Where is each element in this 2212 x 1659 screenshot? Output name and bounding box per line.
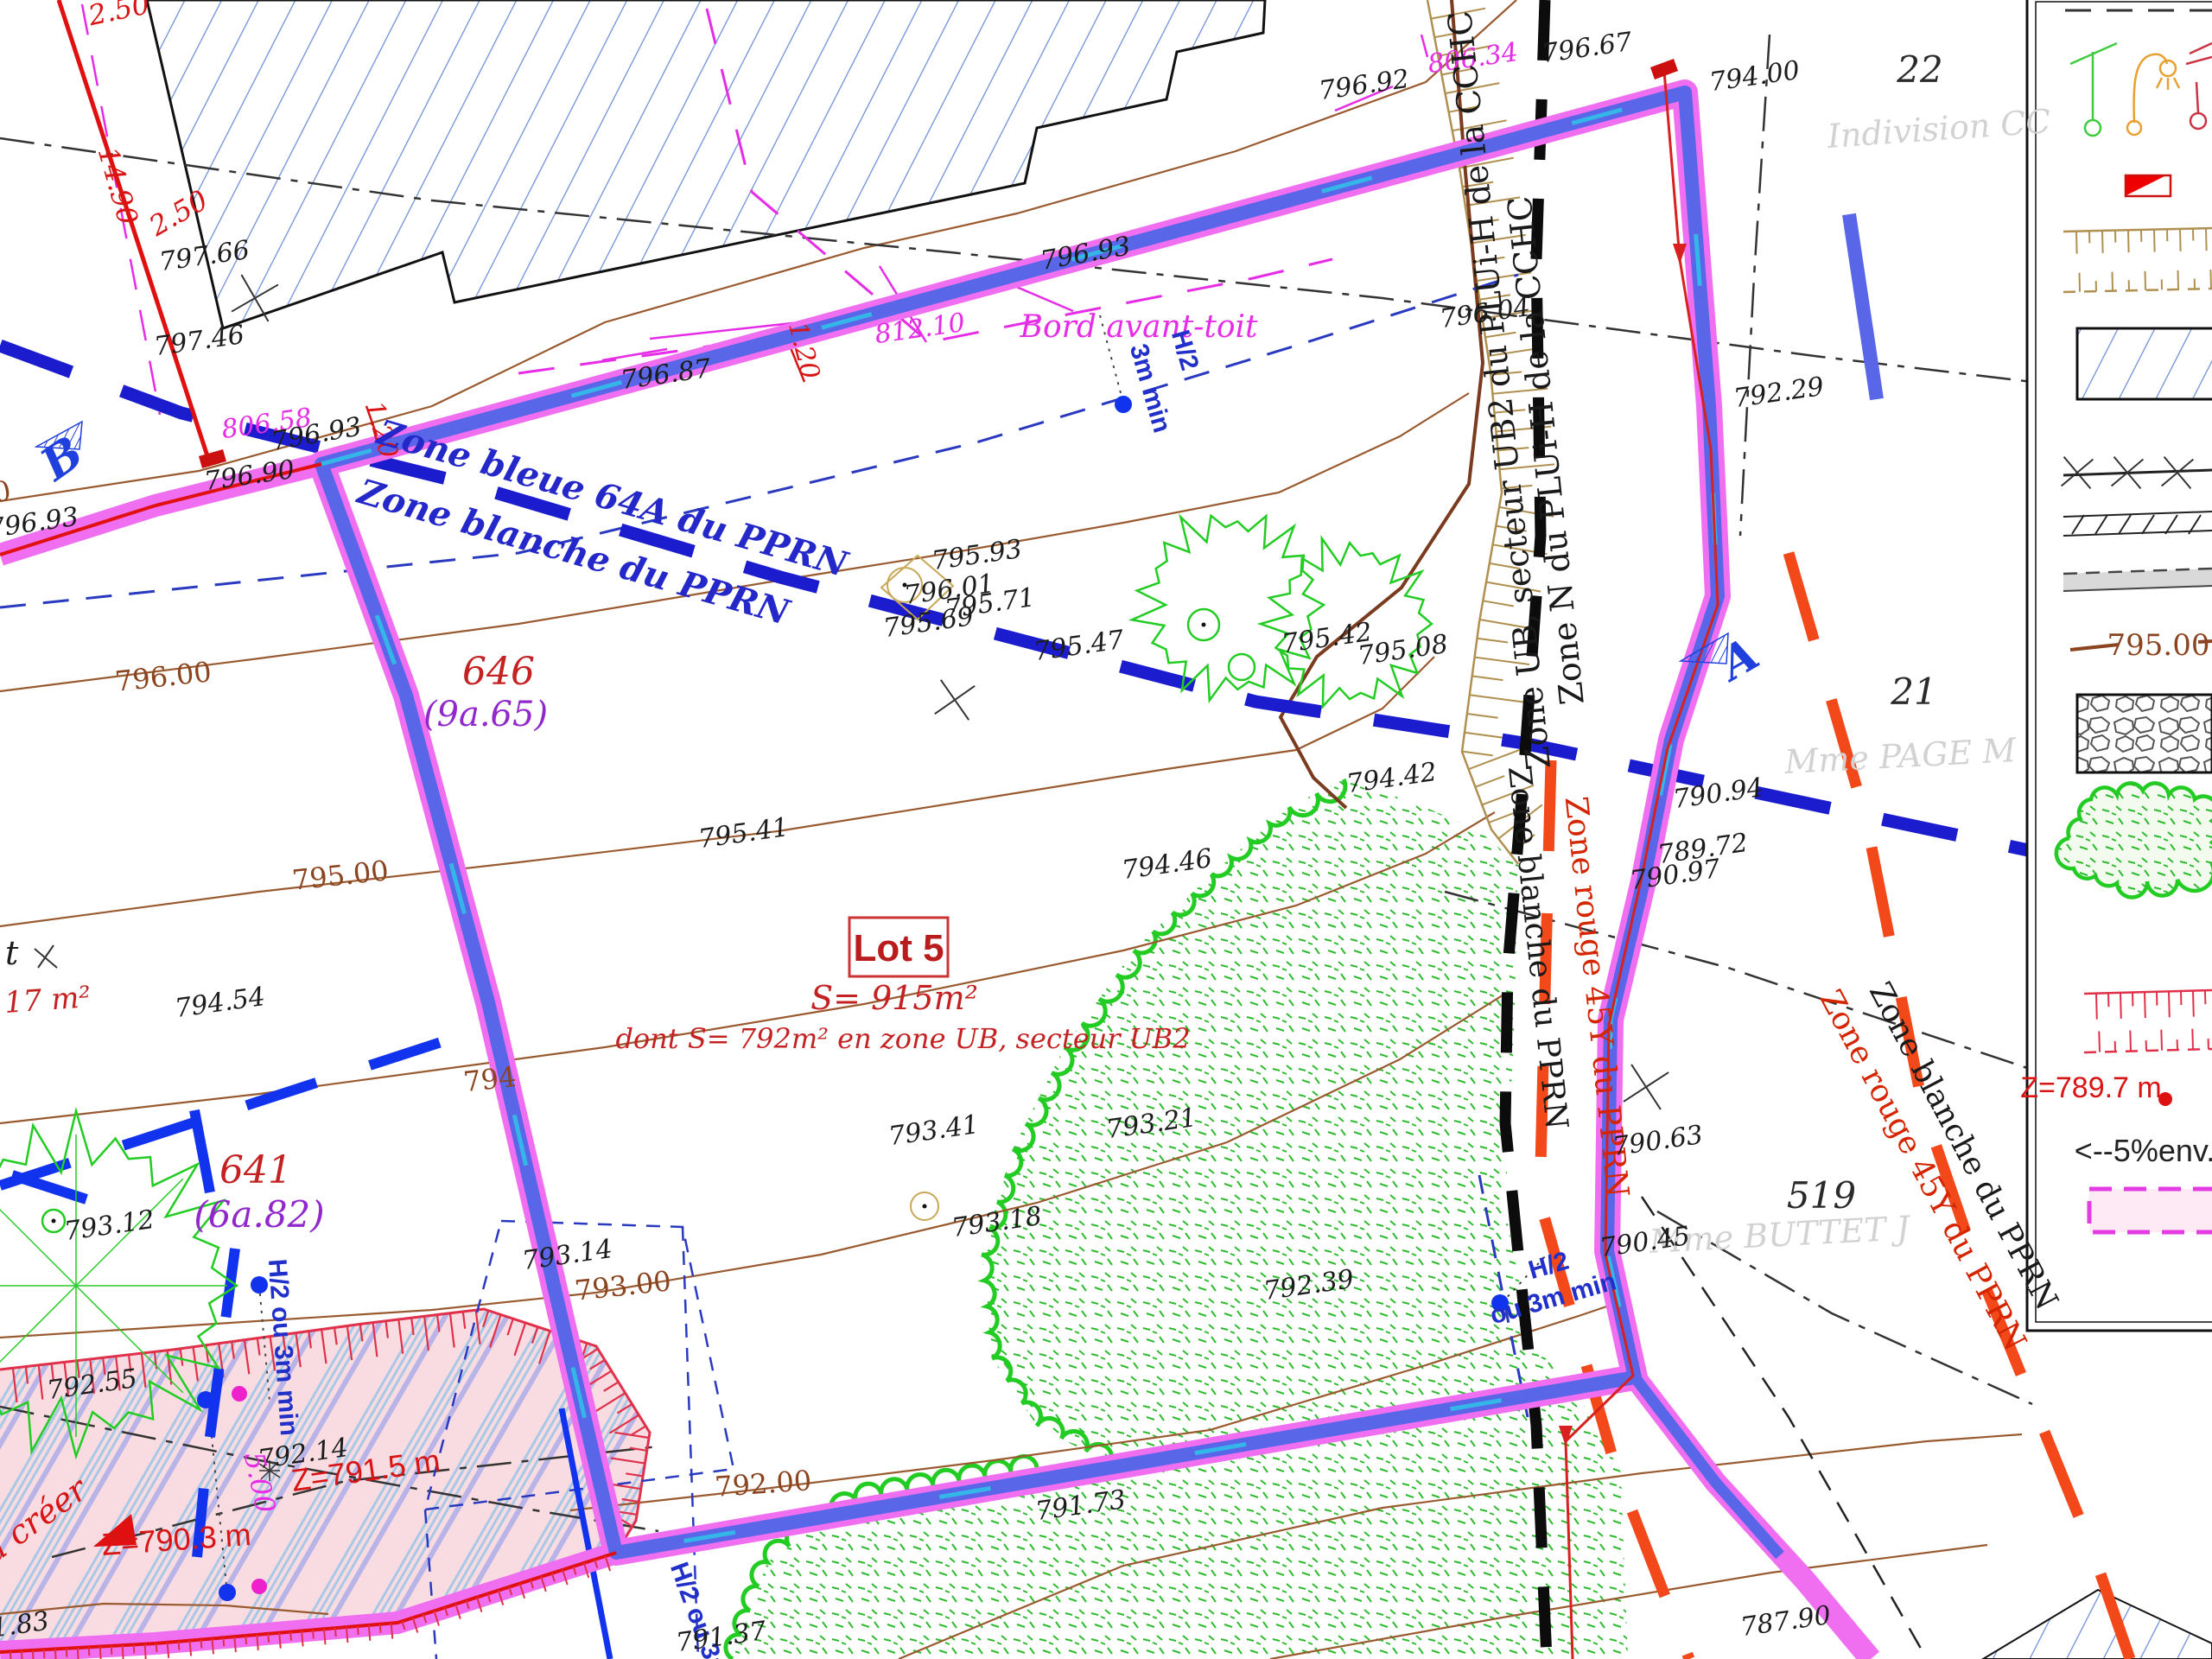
map-label: t <box>5 934 19 972</box>
map-label: S= 915m² <box>810 979 978 1017</box>
project-zone-icon <box>2089 1189 2212 1232</box>
map-label: (9a.65) <box>423 695 548 734</box>
map-label: 519 <box>1787 1174 1856 1217</box>
building-hatch-icon <box>2077 328 2212 399</box>
map-label: <--5%env. <box>2075 1133 2212 1168</box>
map-label: dont S= 792m² en zone UB, secteur UB2 <box>615 1022 1190 1055</box>
map-label: Bord avant-toit <box>1019 309 1258 345</box>
cadastral-map-canvas: 2.5014.902.50797.66797.46806.34796.92796… <box>0 0 2212 1659</box>
map-label: 17 m² <box>3 980 92 1020</box>
site-plan-page: 2.5014.902.50797.66797.46806.34796.92796… <box>0 0 2212 1659</box>
map-label: (6a.82) <box>194 1193 324 1236</box>
map-label: 21 <box>1890 671 1936 713</box>
stone-wall-icon <box>2077 695 2212 772</box>
map-label: 646 <box>462 650 535 694</box>
map-label: 22 <box>1896 48 1942 91</box>
map-label: 792.00 <box>714 1464 812 1503</box>
map-label: 641 <box>219 1148 292 1192</box>
map-label: 795.00 <box>2107 628 2210 663</box>
map-label: 794 <box>461 1060 518 1098</box>
map-label: Lot 5 <box>853 927 944 969</box>
map-label: Z=789.7 m <box>2020 1071 2161 1104</box>
legend-panel <box>2027 0 2212 1331</box>
